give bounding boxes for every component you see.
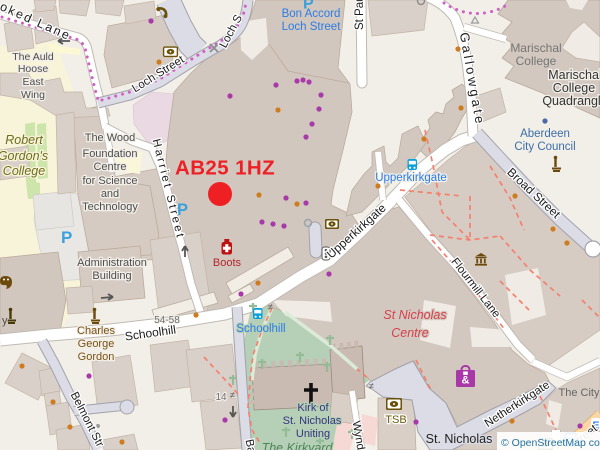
svg-text:Gordon: Gordon bbox=[78, 351, 115, 363]
svg-text:Quadrangle: Quadrangle bbox=[542, 94, 600, 108]
svg-text:Aberdeen: Aberdeen bbox=[520, 128, 570, 140]
svg-text:St. Nicholas: St. Nicholas bbox=[283, 415, 342, 427]
svg-text:≠: ≠ bbox=[369, 381, 374, 391]
svg-text:Gordon's: Gordon's bbox=[0, 149, 48, 163]
svg-text:≠: ≠ bbox=[230, 390, 235, 400]
svg-text:≠: ≠ bbox=[268, 302, 273, 312]
svg-text:Charles: Charles bbox=[77, 325, 115, 337]
svg-text:Robert: Robert bbox=[5, 133, 43, 147]
svg-text:Kirk of: Kirk of bbox=[297, 402, 329, 414]
svg-text:College: College bbox=[516, 54, 557, 68]
svg-text:&: & bbox=[462, 375, 470, 387]
svg-text:Loch Street: Loch Street bbox=[282, 21, 342, 33]
svg-text:© OpenStreetMap con: © OpenStreetMap con bbox=[501, 437, 600, 449]
svg-text:City Council: City Council bbox=[514, 141, 575, 153]
svg-text:George: George bbox=[78, 338, 115, 350]
svg-text:for Science: for Science bbox=[82, 175, 137, 187]
svg-text:Bon Accord: Bon Accord bbox=[282, 8, 341, 20]
svg-text:The Wood: The Wood bbox=[85, 132, 136, 144]
svg-text:St Paul Str: St Paul Str bbox=[354, 0, 366, 30]
svg-text:Centre: Centre bbox=[391, 326, 429, 340]
svg-text:The City: The City bbox=[559, 387, 600, 399]
svg-text:Upperkirkgate: Upperkirkgate bbox=[375, 172, 447, 184]
svg-text:Boots: Boots bbox=[213, 257, 242, 269]
svg-text:Wing: Wing bbox=[21, 89, 45, 101]
svg-text:14: 14 bbox=[215, 392, 227, 403]
svg-text:P: P bbox=[61, 228, 72, 247]
svg-text:TSB: TSB bbox=[385, 414, 406, 426]
svg-text:and: and bbox=[101, 188, 119, 200]
svg-text:Administration: Administration bbox=[77, 257, 147, 269]
svg-text:Building: Building bbox=[92, 270, 131, 282]
svg-text:Marischal: Marischal bbox=[510, 41, 561, 55]
svg-text:Hoose: Hoose bbox=[18, 63, 49, 75]
svg-text:The Auld: The Auld bbox=[12, 51, 54, 63]
svg-text:College: College bbox=[3, 164, 45, 178]
svg-text:The Kirkyard: The Kirkyard bbox=[262, 441, 334, 450]
svg-text:AB25 1HZ: AB25 1HZ bbox=[175, 157, 275, 180]
svg-text:Centre: Centre bbox=[93, 161, 126, 173]
svg-text:East: East bbox=[22, 76, 43, 88]
svg-text:College: College bbox=[553, 81, 595, 95]
svg-text:Schoolhill: Schoolhill bbox=[236, 323, 285, 335]
svg-text:Uniting: Uniting bbox=[296, 428, 330, 440]
svg-text:Technology: Technology bbox=[82, 201, 138, 213]
svg-text:St. Nicholas: St. Nicholas bbox=[426, 432, 493, 446]
svg-text:Marischal: Marischal bbox=[548, 68, 600, 82]
svg-text:St Nicholas: St Nicholas bbox=[383, 308, 446, 322]
svg-text:y: y bbox=[2, 315, 8, 327]
svg-text:Ba: Ba bbox=[243, 438, 258, 450]
svg-text:Foundation: Foundation bbox=[82, 148, 137, 160]
